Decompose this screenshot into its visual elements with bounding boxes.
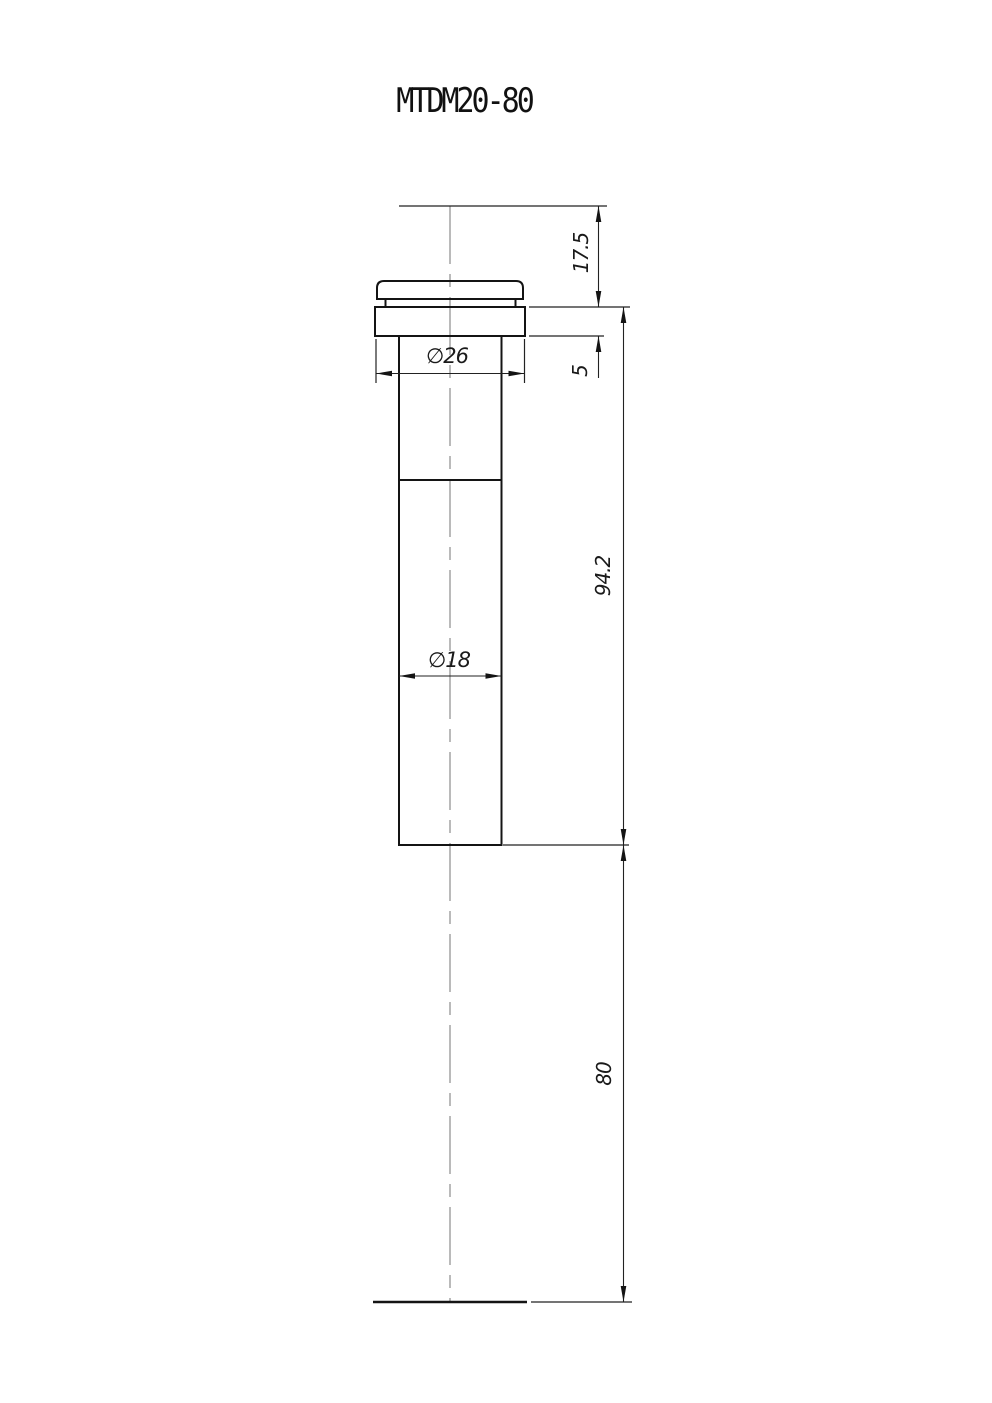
dim-label-top-height: 17.5 bbox=[569, 233, 593, 274]
arrow-right-icon bbox=[486, 673, 502, 679]
arrow-up-icon bbox=[596, 206, 602, 222]
drawing-sheet: MTDM20-80 ∅26 ∅18 17.5 5 94.2 80 bbox=[0, 0, 992, 1403]
arrow-up-icon bbox=[621, 845, 627, 861]
dim-label-body-length: 94.2 bbox=[591, 556, 615, 597]
extension-lines bbox=[376, 206, 632, 1302]
arrow-up-icon bbox=[621, 307, 627, 323]
arrow-left-icon bbox=[399, 673, 415, 679]
dim-label-body-diameter: ∅18 bbox=[428, 648, 470, 672]
arrow-up-icon bbox=[596, 336, 602, 352]
dim-label-working-distance: 80 bbox=[592, 1062, 616, 1085]
arrow-down-icon bbox=[621, 1286, 627, 1302]
arrow-right-icon bbox=[509, 371, 525, 377]
dim-label-flange-thickness: 5 bbox=[568, 365, 592, 377]
dim-label-flange-diameter: ∅26 bbox=[426, 344, 468, 368]
arrow-down-icon bbox=[596, 291, 602, 307]
drawing-title: MTDM20-80 bbox=[394, 81, 534, 124]
arrow-left-icon bbox=[376, 371, 392, 377]
technical-drawing bbox=[0, 0, 992, 1403]
arrow-down-icon bbox=[621, 829, 627, 845]
